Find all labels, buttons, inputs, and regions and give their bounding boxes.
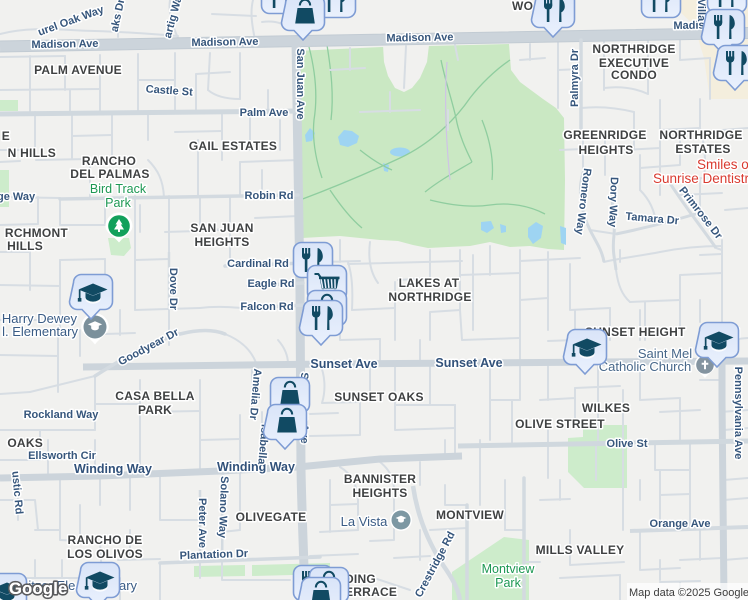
svg-text:LOS OLIVOS: LOS OLIVOS <box>67 547 143 561</box>
svg-text:NORTHRIDGE: NORTHRIDGE <box>592 42 675 56</box>
svg-text:Orange Ave: Orange Ave <box>650 518 711 530</box>
svg-text:WILKES: WILKES <box>582 401 630 415</box>
svg-text:RANCHO DE: RANCHO DE <box>68 533 143 547</box>
svg-text:Park: Park <box>105 196 131 210</box>
svg-text:Peter Ave: Peter Ave <box>196 498 208 548</box>
svg-text:GREENRIDGE: GREENRIDGE <box>563 128 646 142</box>
svg-text:HILLS: HILLS <box>7 239 43 253</box>
svg-text:CASA BELLA: CASA BELLA <box>115 389 194 403</box>
svg-text:MILLS VALLEY: MILLS VALLEY <box>536 543 625 557</box>
svg-text:Robin Rd: Robin Rd <box>245 190 294 202</box>
svg-text:Eagle Rd: Eagle Rd <box>247 278 294 290</box>
svg-text:HEIGHTS: HEIGHTS <box>194 235 249 249</box>
svg-text:Sunset Ave: Sunset Ave <box>435 356 502 370</box>
svg-text:Falcon Rd: Falcon Rd <box>240 301 293 313</box>
svg-text:OLIVE STREET: OLIVE STREET <box>515 417 605 431</box>
svg-text:Madison Ave: Madison Ave <box>31 38 98 51</box>
svg-text:l. Elementary: l. Elementary <box>2 324 78 339</box>
svg-text:OLIVEGATE: OLIVEGATE <box>236 510 307 524</box>
svg-text:Ellsworth Cir: Ellsworth Cir <box>28 450 97 462</box>
svg-text:Palm Ave: Palm Ave <box>240 107 289 119</box>
svg-text:DING: DING <box>345 572 376 586</box>
svg-text:RCHMONT: RCHMONT <box>5 226 68 240</box>
svg-text:NORTHRIDGE: NORTHRIDGE <box>388 290 471 304</box>
svg-text:OAKS: OAKS <box>7 436 43 450</box>
svg-text:GAIL ESTATES: GAIL ESTATES <box>189 139 277 153</box>
svg-text:Catholic Church: Catholic Church <box>599 359 692 374</box>
svg-text:ge Way: ge Way <box>0 191 36 203</box>
svg-text:Montview: Montview <box>482 562 536 576</box>
svg-text:CONDO: CONDO <box>611 68 657 82</box>
svg-text:MONTVIEW: MONTVIEW <box>436 508 504 522</box>
svg-text:Sunrise Dentistry: Sunrise Dentistry <box>653 171 748 186</box>
svg-text:ESTATES: ESTATES <box>675 142 730 156</box>
svg-text:SUNSET OAKS: SUNSET OAKS <box>334 390 423 404</box>
svg-text:Rockland Way: Rockland Way <box>24 409 100 421</box>
svg-text:HEIGHTS: HEIGHTS <box>352 486 407 500</box>
svg-text:BANNISTER: BANNISTER <box>344 472 416 486</box>
svg-text:E: E <box>2 129 10 143</box>
svg-text:LAKES AT: LAKES AT <box>399 276 460 290</box>
svg-text:Dory Way: Dory Way <box>606 177 620 229</box>
svg-text:RANCHO: RANCHO <box>82 154 136 168</box>
svg-text:Madison Ave: Madison Ave <box>191 36 258 49</box>
svg-text:Palmyra Dr: Palmyra Dr <box>569 48 581 107</box>
svg-text:PARK: PARK <box>138 403 172 417</box>
svg-text:Winding Way: Winding Way <box>74 462 152 476</box>
svg-text:Pennsylvania Ave: Pennsylvania Ave <box>732 367 744 460</box>
svg-text:Plantation Dr: Plantation Dr <box>179 548 249 562</box>
svg-text:SAN JUAN: SAN JUAN <box>190 221 253 235</box>
svg-text:La Vista: La Vista <box>341 514 389 529</box>
svg-text:HEIGHTS: HEIGHTS <box>578 143 633 157</box>
svg-text:DEL PALMAS: DEL PALMAS <box>70 167 149 181</box>
svg-text:ary: ary <box>119 578 138 593</box>
svg-text:Map data ©2025 Google: Map data ©2025 Google <box>629 587 748 599</box>
svg-text:ERRACE: ERRACE <box>345 585 397 599</box>
svg-text:Sunset Ave: Sunset Ave <box>310 357 377 371</box>
svg-text:Google: Google <box>9 580 68 598</box>
svg-text:NORTHRIDGE: NORTHRIDGE <box>659 128 742 142</box>
svg-text:Dove Dr: Dove Dr <box>167 268 179 311</box>
svg-text:Madison Ave: Madison Ave <box>386 31 453 44</box>
svg-text:Bird Track: Bird Track <box>90 182 147 196</box>
svg-text:Solano Way: Solano Way <box>216 476 230 539</box>
svg-text:Olive St: Olive St <box>607 438 648 450</box>
svg-text:Cardinal Rd: Cardinal Rd <box>227 258 289 270</box>
svg-text:Park: Park <box>495 576 521 590</box>
svg-text:PALM AVENUE: PALM AVENUE <box>34 63 122 77</box>
svg-text:N HILLS: N HILLS <box>8 146 56 160</box>
svg-text:Smiles of: Smiles of <box>697 157 748 172</box>
svg-text:San Juan Ave: San Juan Ave <box>294 48 306 119</box>
svg-text:WO: WO <box>512 0 533 13</box>
